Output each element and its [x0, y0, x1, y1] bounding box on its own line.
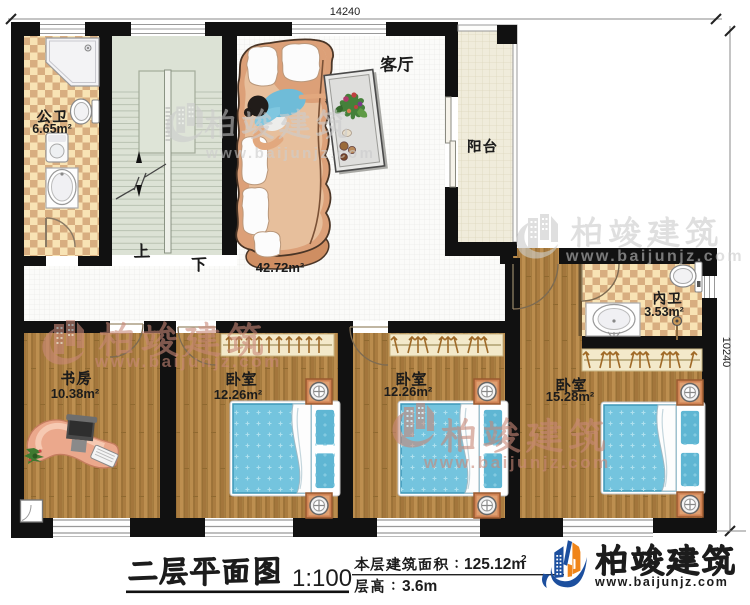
- svg-text:3.53m²: 3.53m²: [644, 305, 684, 319]
- svg-text:www.baijunjz.com: www.baijunjz.com: [594, 575, 728, 589]
- svg-text:3.6m: 3.6m: [402, 578, 437, 595]
- svg-text:10.38m²: 10.38m²: [51, 386, 100, 401]
- svg-text:6.65m²: 6.65m²: [32, 122, 72, 136]
- svg-text:125.12m: 125.12m: [464, 556, 525, 573]
- svg-text:www.baijunjz.com: www.baijunjz.com: [423, 453, 611, 472]
- svg-text:12.26m²: 12.26m²: [384, 384, 433, 399]
- svg-text:1:100: 1:100: [292, 565, 352, 592]
- svg-text:12.26m²: 12.26m²: [214, 387, 263, 402]
- svg-text:14240: 14240: [330, 6, 361, 18]
- svg-text:2: 2: [521, 554, 527, 565]
- svg-text:www.baijunjz.com: www.baijunjz.com: [205, 145, 375, 162]
- svg-text:42.72m²: 42.72m²: [256, 260, 305, 275]
- svg-text:10240: 10240: [720, 337, 732, 368]
- svg-text:www.baijunjz.com: www.baijunjz.com: [94, 352, 282, 371]
- svg-text:15.28m²: 15.28m²: [546, 389, 595, 404]
- svg-text:www.baijunjz.com: www.baijunjz.com: [565, 248, 744, 265]
